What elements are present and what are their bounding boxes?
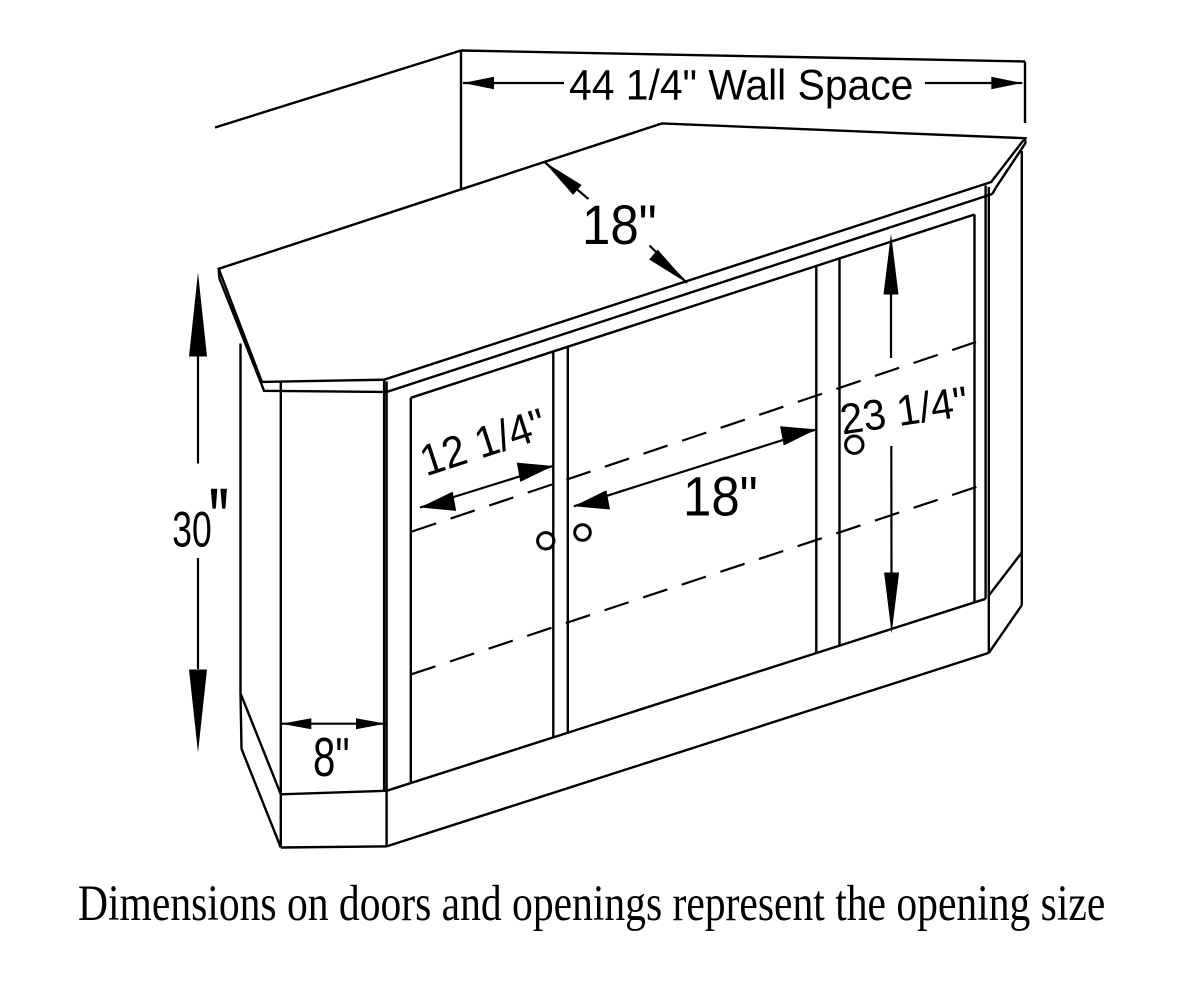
svg-text:30: 30: [172, 503, 211, 558]
svg-text:44 1/4" Wall Space: 44 1/4" Wall Space: [569, 61, 913, 109]
svg-text:23 1/4": 23 1/4": [837, 377, 971, 444]
svg-text:18": 18": [582, 195, 657, 257]
svg-text:18": 18": [683, 466, 758, 528]
svg-text:8": 8": [313, 727, 350, 789]
